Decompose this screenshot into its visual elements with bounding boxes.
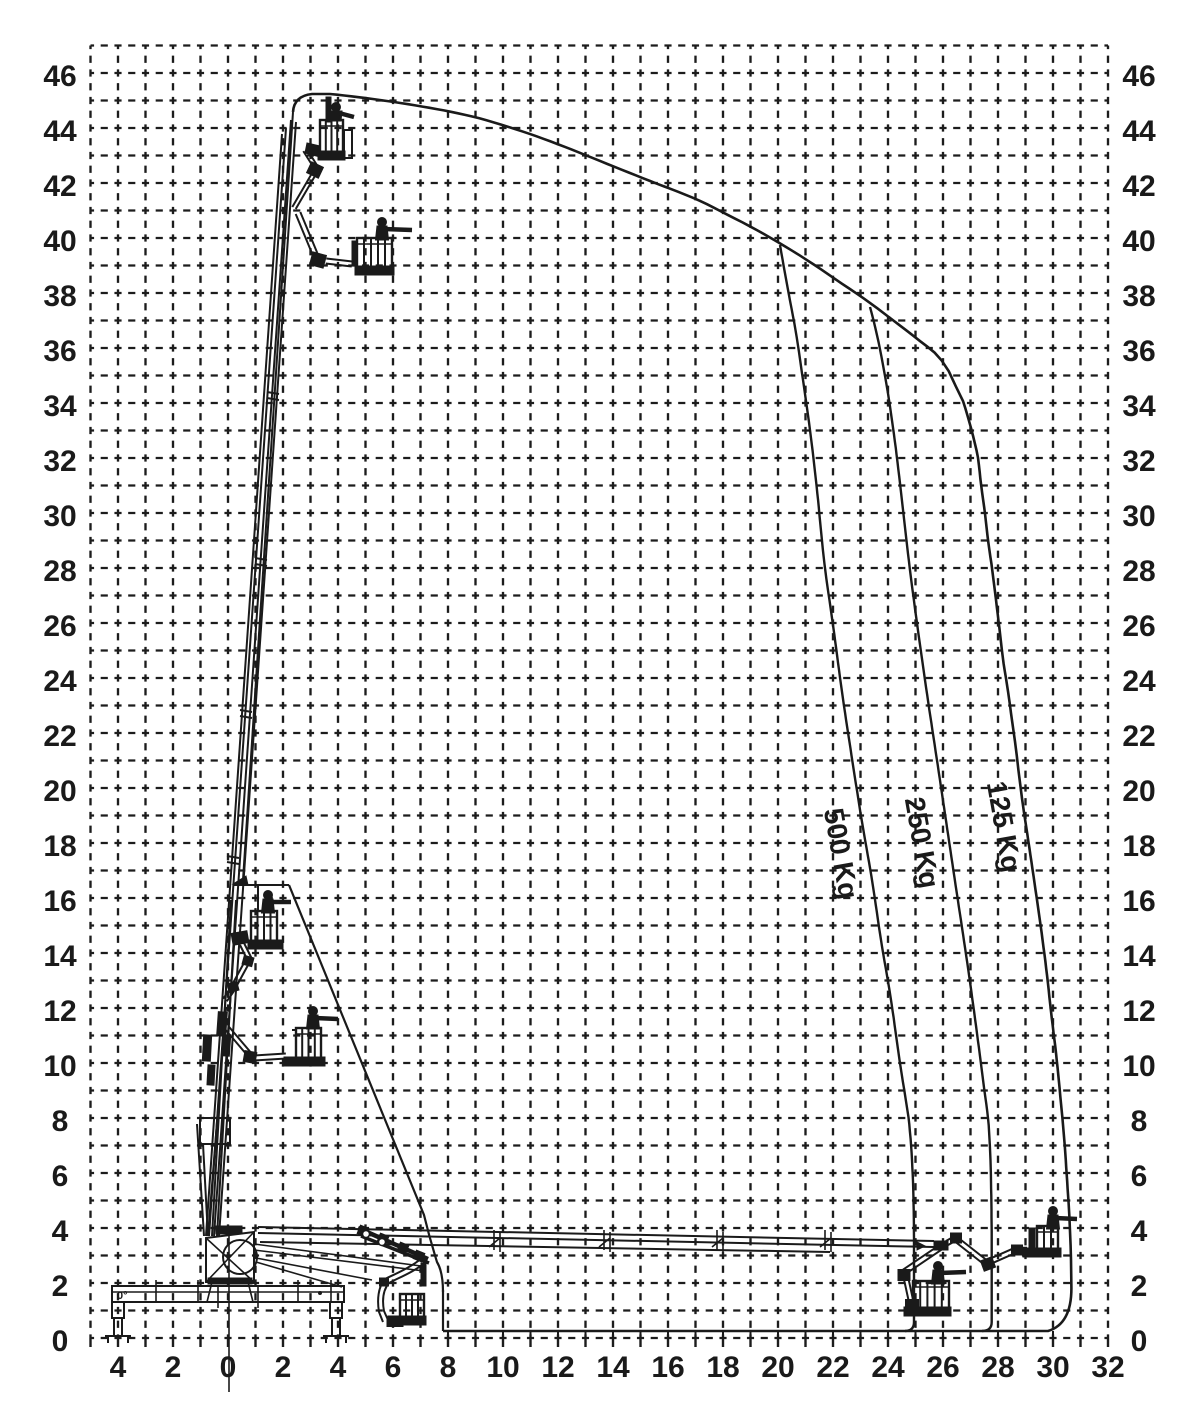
svg-text:6: 6 — [385, 1351, 402, 1384]
svg-text:20: 20 — [1122, 775, 1155, 808]
svg-text:32: 32 — [1122, 445, 1155, 478]
svg-text:8: 8 — [440, 1351, 457, 1384]
svg-text:28: 28 — [1122, 555, 1155, 588]
svg-text:2: 2 — [165, 1351, 182, 1384]
svg-text:10: 10 — [1122, 1050, 1155, 1083]
svg-text:2: 2 — [52, 1270, 69, 1303]
svg-text:22: 22 — [816, 1351, 849, 1384]
svg-text:30: 30 — [1122, 500, 1155, 533]
svg-text:34: 34 — [1122, 390, 1156, 423]
svg-text:38: 38 — [1122, 280, 1155, 313]
svg-text:36: 36 — [1122, 335, 1155, 368]
svg-text:26: 26 — [1122, 610, 1155, 643]
svg-text:8: 8 — [1131, 1105, 1148, 1138]
svg-text:0: 0 — [1131, 1325, 1148, 1358]
svg-text:20: 20 — [43, 775, 76, 808]
svg-text:26: 26 — [926, 1351, 959, 1384]
svg-text:6: 6 — [1131, 1160, 1148, 1193]
svg-text:2: 2 — [275, 1351, 292, 1384]
svg-text:18: 18 — [43, 830, 76, 863]
svg-text:40: 40 — [1122, 225, 1155, 258]
svg-text:4: 4 — [1131, 1215, 1148, 1248]
svg-text:4: 4 — [52, 1215, 69, 1248]
svg-text:32: 32 — [43, 445, 76, 478]
svg-text:44: 44 — [1122, 115, 1156, 148]
svg-text:42: 42 — [1122, 170, 1155, 203]
svg-text:46: 46 — [43, 60, 76, 93]
svg-text:28: 28 — [43, 555, 76, 588]
svg-text:14: 14 — [596, 1351, 630, 1384]
svg-text:30: 30 — [1036, 1351, 1069, 1384]
svg-text:4: 4 — [110, 1351, 127, 1384]
svg-text:24: 24 — [871, 1351, 905, 1384]
svg-text:8: 8 — [52, 1105, 69, 1138]
svg-text:38: 38 — [43, 280, 76, 313]
svg-text:40: 40 — [43, 225, 76, 258]
svg-text:14: 14 — [1122, 940, 1156, 973]
svg-text:18: 18 — [1122, 830, 1155, 863]
svg-text:34: 34 — [43, 390, 77, 423]
svg-text:0: 0 — [220, 1351, 237, 1384]
svg-text:30: 30 — [43, 500, 76, 533]
svg-text:12: 12 — [541, 1351, 574, 1384]
svg-text:18: 18 — [706, 1351, 739, 1384]
svg-text:0°: 0° — [117, 1290, 128, 1302]
svg-text:12: 12 — [1122, 995, 1155, 1028]
svg-text:36: 36 — [43, 335, 76, 368]
svg-text:44: 44 — [43, 115, 77, 148]
svg-text:28: 28 — [981, 1351, 1014, 1384]
svg-text:10: 10 — [486, 1351, 519, 1384]
svg-text:4: 4 — [330, 1351, 347, 1384]
svg-text:20: 20 — [761, 1351, 794, 1384]
svg-text:10: 10 — [43, 1050, 76, 1083]
svg-text:16: 16 — [651, 1351, 684, 1384]
svg-text:16: 16 — [1122, 885, 1155, 918]
svg-text:46: 46 — [1122, 60, 1155, 93]
svg-text:6: 6 — [52, 1160, 69, 1193]
svg-text:16: 16 — [43, 885, 76, 918]
svg-text:24: 24 — [43, 665, 77, 698]
svg-text:24: 24 — [1122, 665, 1156, 698]
svg-text:2: 2 — [1131, 1270, 1148, 1303]
svg-text:0: 0 — [52, 1325, 69, 1358]
svg-text:14: 14 — [43, 940, 77, 973]
svg-text:26: 26 — [43, 610, 76, 643]
svg-text:22: 22 — [43, 720, 76, 753]
svg-text:12: 12 — [43, 995, 76, 1028]
svg-text:42: 42 — [43, 170, 76, 203]
svg-text:32: 32 — [1091, 1351, 1124, 1384]
svg-text:22: 22 — [1122, 720, 1155, 753]
